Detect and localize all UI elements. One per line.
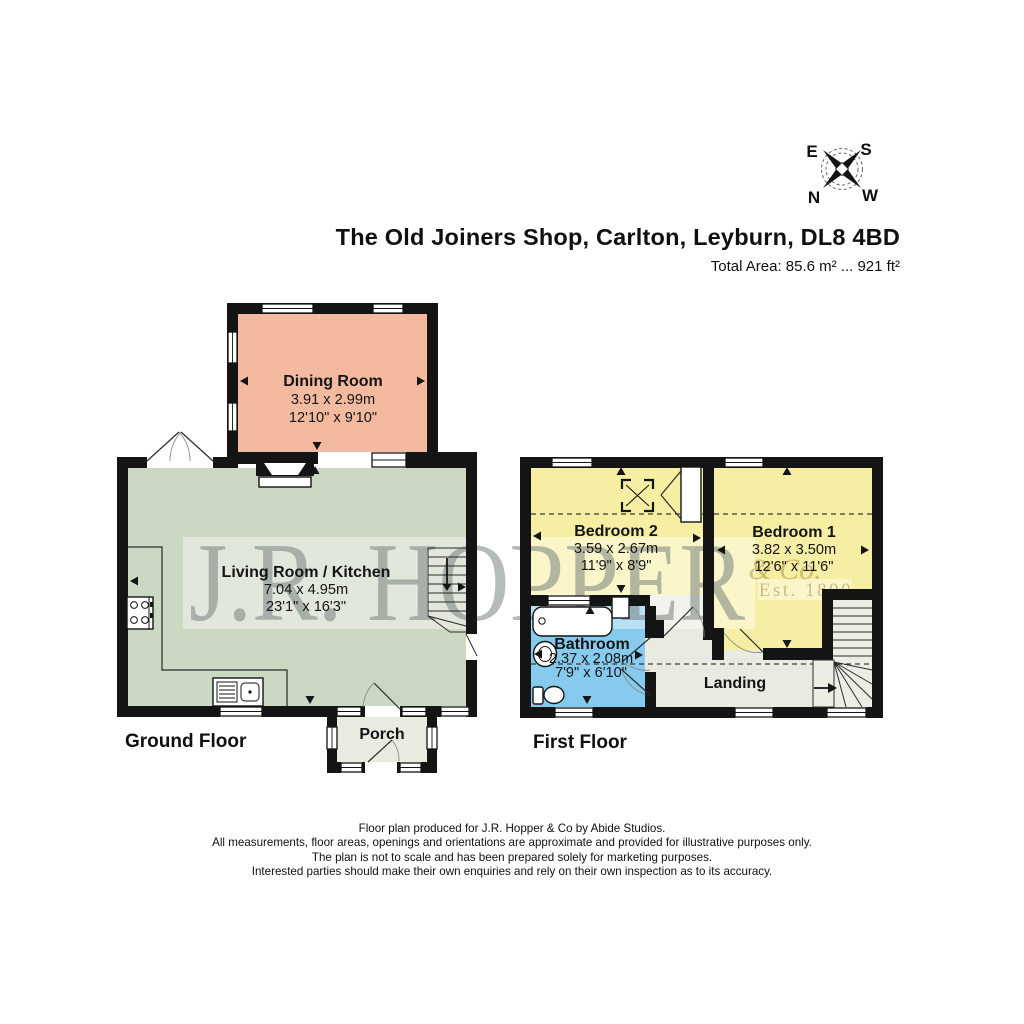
compass-east: E — [806, 142, 817, 161]
living-room-metric: 7.04 x 4.95m — [264, 582, 348, 598]
floorplan-page: The Old Joiners Shop, Carlton, Leyburn, … — [0, 0, 1024, 1024]
bathtub — [533, 607, 612, 636]
bedroom1-label: Bedroom 1 — [752, 524, 836, 541]
ground-floor-label: Ground Floor — [125, 731, 247, 752]
bedroom2-label: Bedroom 2 — [574, 523, 658, 540]
stair-wall-notch — [466, 634, 477, 660]
living-room-imperial: 23'1" x 16'3" — [266, 599, 346, 615]
bedroom1-imperial: 12'6" x 11'6" — [755, 559, 834, 575]
first-floor-label: First Floor — [533, 732, 628, 753]
disclaimer-line: Interested parties should make their own… — [0, 865, 1024, 879]
disclaimer-line: All measurements, floor areas, openings … — [0, 836, 1024, 850]
french-doors — [147, 432, 213, 461]
bedroom2-metric: 3.59 x 2.67m — [574, 541, 658, 557]
compass-rose: E S N W — [806, 140, 879, 207]
dining-room-label: Dining Room — [283, 373, 383, 390]
airing-cupboard — [612, 597, 629, 618]
dining-room-imperial: 12'10" x 9'10" — [289, 410, 377, 426]
compass-south: S — [860, 140, 871, 159]
kitchen-sink — [213, 678, 263, 706]
living-room-label: Living Room / Kitchen — [222, 564, 391, 581]
porch-label: Porch — [359, 726, 404, 743]
hearth — [259, 477, 311, 487]
landing-label: Landing — [704, 675, 766, 692]
toilet — [533, 687, 564, 705]
disclaimer-line: The plan is not to scale and has been pr… — [0, 851, 1024, 865]
bedroom2-imperial: 11'9" x 8'9" — [581, 558, 652, 574]
disclaimer-line: Floor plan produced for J.R. Hopper & Co… — [0, 822, 1024, 836]
hob — [127, 597, 153, 629]
bedroom1-metric: 3.82 x 3.50m — [752, 542, 836, 558]
compass-west: W — [862, 186, 879, 205]
bathroom-imperial: 7'9" x 6'10" — [555, 665, 627, 681]
compass-north: N — [808, 188, 820, 207]
dining-room-metric: 3.91 x 2.99m — [291, 392, 375, 408]
disclaimer: Floor plan produced for J.R. Hopper & Co… — [0, 822, 1024, 879]
